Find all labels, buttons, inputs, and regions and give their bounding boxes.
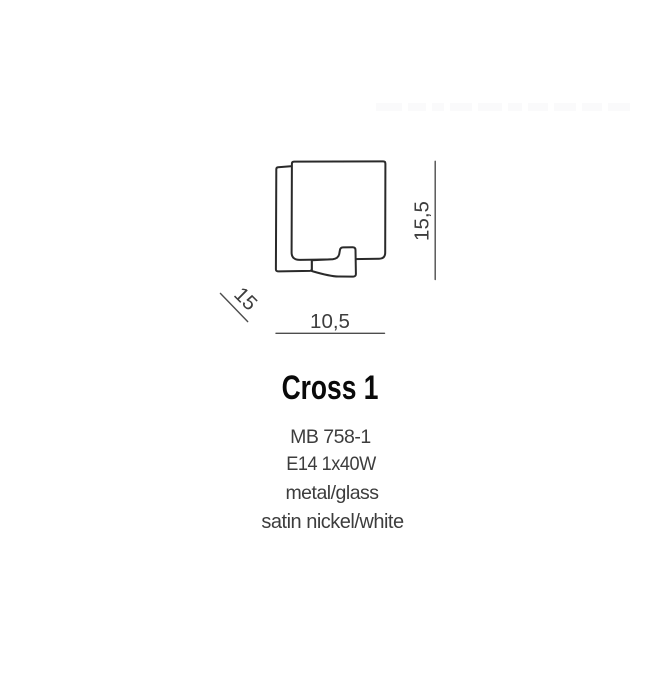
svg-text:15,5: 15,5 bbox=[410, 201, 433, 241]
svg-text:15: 15 bbox=[229, 283, 261, 315]
svg-text:10,5: 10,5 bbox=[310, 310, 350, 333]
